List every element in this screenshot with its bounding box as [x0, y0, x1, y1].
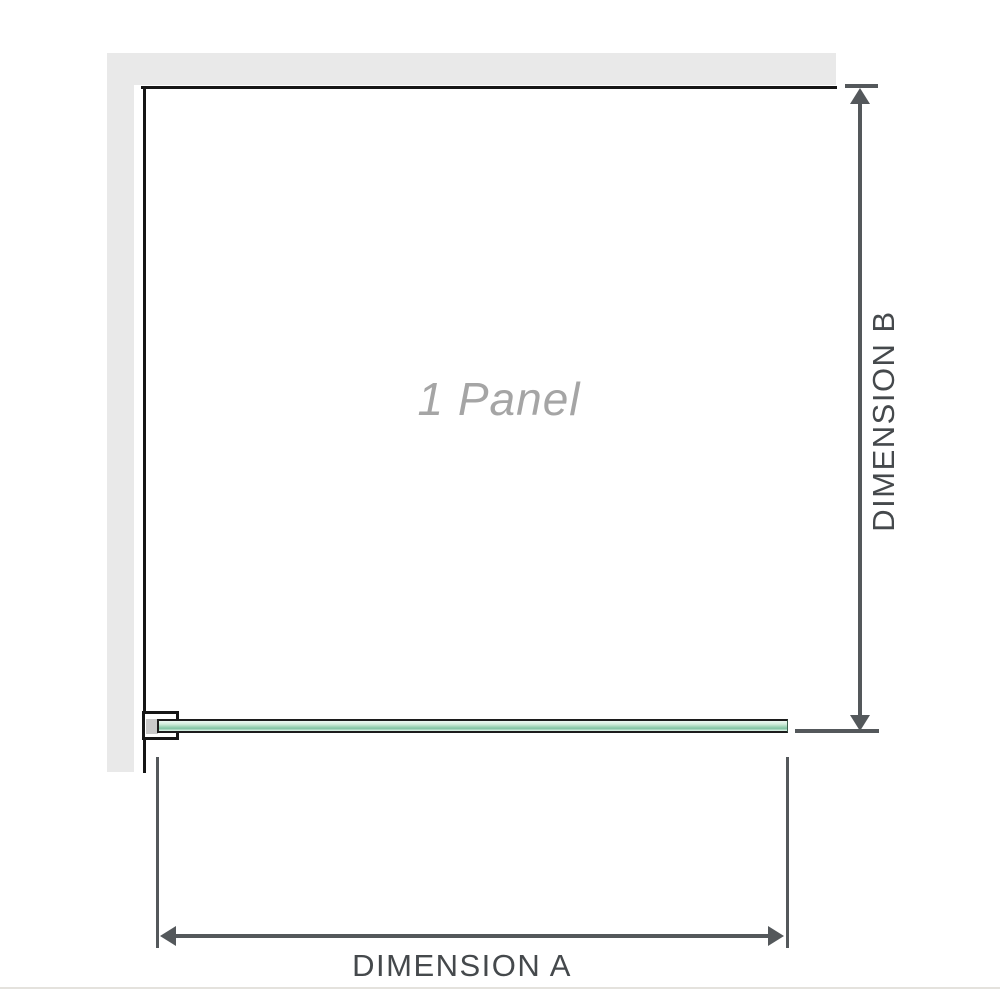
dimension-a-label: DIMENSION A — [352, 948, 572, 984]
arrow-left-icon — [160, 926, 176, 946]
dimension-a-right-extension — [786, 757, 789, 948]
glass-panel-bar — [157, 719, 788, 733]
dimension-b-line — [858, 96, 862, 722]
panel-outline-top-edge — [141, 86, 837, 89]
arrow-right-icon — [768, 926, 784, 946]
bottom-divider-line — [0, 987, 1000, 989]
panel-dimension-diagram: DIMENSION B DIMENSION A 1 Panel — [0, 0, 1000, 1000]
panel-count-label: 1 Panel — [417, 372, 580, 426]
dimension-b-label: DIMENSION B — [866, 310, 902, 531]
wall-left-bar — [107, 53, 134, 772]
panel-outline-left-edge — [143, 86, 146, 773]
dimension-a-line — [170, 934, 772, 938]
dimension-a-left-extension — [156, 757, 159, 948]
wall-top-bar — [107, 53, 836, 85]
arrow-down-icon — [850, 715, 870, 731]
arrow-up-icon — [850, 88, 870, 104]
